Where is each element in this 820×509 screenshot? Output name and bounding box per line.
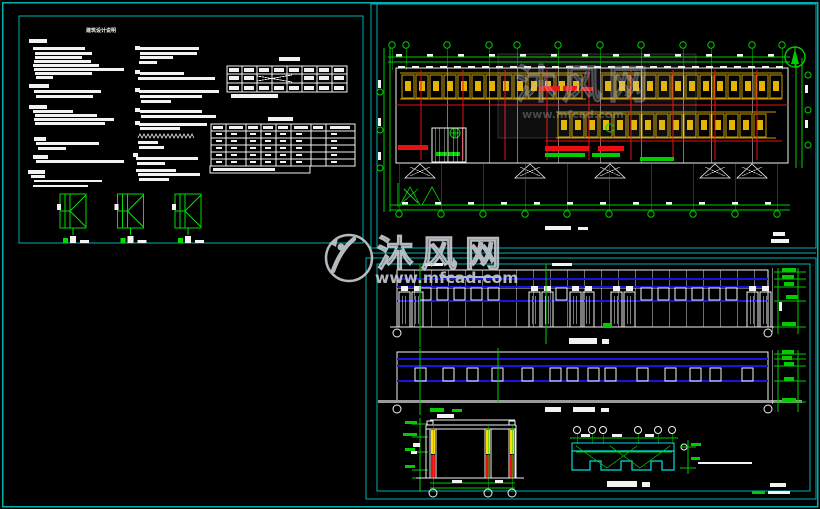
door-leaf [70,194,86,228]
section-level-text [413,443,420,447]
notes-column-2 [135,108,140,112]
dim-text [178,238,183,243]
notes-column-2 [136,169,176,172]
window [726,288,737,300]
fixture [731,81,737,91]
dim-text [70,236,76,243]
axis-bubble [393,329,401,337]
canopy-title [607,481,637,487]
green-annotations [545,153,585,157]
fixture [715,120,721,130]
axis-bubble [438,211,444,217]
window [690,368,701,381]
watermark-tile-brand: 沐风网 [516,62,654,108]
axis-bubble [764,329,772,337]
canopy-dim-text [645,434,654,437]
axis-bubble [564,211,570,217]
section-bottom-dim-text [495,480,503,483]
notes-column-2 [139,61,157,64]
front-elevation-title [602,339,609,344]
window [742,368,753,381]
axis-bubble [377,165,383,171]
table1-cells [304,86,314,90]
window [658,288,669,300]
dim-text [567,202,573,205]
table1-cells [274,86,284,90]
dim-text-left [378,118,381,126]
window [550,368,561,381]
section-level-text [411,451,417,454]
door [542,292,553,327]
window [437,288,448,300]
red-annotations [545,146,589,151]
axis-bubble [486,42,492,48]
table2-cells [296,154,302,156]
green-annotations [640,157,674,161]
door-sign [572,286,579,291]
rear-dim-text [782,356,792,360]
table2-cells [216,147,222,149]
watermark-logo-dot [338,244,345,251]
table1-cells [334,86,344,90]
table2-cells [280,161,286,163]
front-dim-text [782,275,794,279]
canopy-braces [640,446,670,468]
axis-bubble [805,142,811,148]
dim-text-left [378,152,381,160]
red-annotations [598,146,624,151]
table2-footer-text [213,168,275,171]
axis-bubble [444,42,450,48]
door [760,292,771,327]
dim-text [185,236,191,243]
table1-cells [334,76,344,80]
watermark: 沐风网www.mfcad.com [326,234,518,287]
notes-sheet-border [19,16,363,243]
canopy-title [642,482,650,487]
notes-column-2 [139,178,169,181]
window [471,288,482,300]
table2-cells [265,161,271,163]
notes-column-1 [34,60,91,63]
table2-cells [280,140,286,142]
notes-column-1 [34,68,124,71]
notes-column-1 [34,137,46,141]
door [529,292,540,327]
titleblock-green-text [752,491,765,494]
table2-cells [296,140,302,142]
fixture [405,81,411,91]
dim-text [501,202,507,205]
dim-text [765,202,771,205]
table1-note [231,94,278,98]
table2-cells [250,161,256,163]
fixture [773,81,779,91]
dim-text [458,54,464,57]
door [399,292,410,327]
axis-bubble [389,42,395,48]
dim-text [128,236,134,243]
front-dim-text [782,322,796,326]
table2-cells [331,133,337,135]
axis-bubble [574,427,581,434]
window [709,288,720,300]
table1-cells [259,86,269,90]
door-handle [57,204,61,210]
door [624,292,635,327]
window [454,288,465,300]
notes-column-1 [36,160,124,163]
table2-headers [313,126,323,129]
level-marks [552,263,572,266]
floor-plan: 沐风网www.mfcad.com [377,42,811,243]
door [611,292,622,327]
notes-column-1 [31,175,45,178]
axis-bubble [805,107,811,113]
rear-dim-text [782,350,794,354]
red-annotations [398,145,428,150]
dim-text [121,238,126,243]
window [710,368,721,381]
titleblock-text [768,491,790,494]
parapet [427,421,433,425]
table2-title [268,117,293,121]
notes-column-1 [34,118,114,121]
table2-headers [213,126,223,129]
section-bottom-dim-text [452,480,462,483]
notes-column-2 [141,115,216,118]
table2-cells [265,147,271,149]
window [637,368,648,381]
window [492,368,503,381]
front-dim-text [786,295,798,299]
fixture [743,120,749,130]
axis-bubble [377,89,383,95]
table2-cells [280,154,286,156]
table2-cells [231,133,237,135]
canopy-braces [576,446,607,468]
door-brace [128,195,144,211]
table1-cells [229,76,239,80]
axis-bubble [732,211,738,217]
watermark-tile-url: www.mfcad.com [522,108,624,121]
notes-column-1 [29,84,49,88]
table1-cells [274,68,284,72]
axis-bubble [774,211,780,217]
window [665,368,676,381]
axis-bubble [484,489,492,497]
ground-strip [378,400,802,403]
table2-cells [280,133,286,135]
table2-cells [331,154,337,156]
gable [515,164,545,178]
notes-column-1 [35,72,92,75]
notes-column-2 [139,123,207,126]
axis-bubble [606,211,612,217]
table1-cells [229,86,239,90]
window [567,368,578,381]
rear-dim-text [782,398,796,402]
axis-bubble [655,427,662,434]
window [467,368,478,381]
notes-column-2 [140,56,173,59]
fixture [475,81,481,91]
door [583,292,594,327]
table2-headers [294,126,308,129]
stair [432,128,466,162]
green-mark [603,323,612,328]
cad-sheet-view: 建筑设计说明沐风网www.mfcad.com沐风网www.mfcad.com [0,0,820,509]
axis-bubble [480,211,486,217]
table1-cells [319,76,329,80]
dim-text [489,54,495,57]
table2-cells [331,140,337,142]
notes-column-1 [35,122,105,125]
section-dim-text [405,448,415,451]
dim-text [427,54,433,57]
table1-cells [289,86,299,90]
door-leaf [128,194,144,228]
dim-text-left [378,80,381,88]
dim-text [468,202,474,205]
door-sign [762,286,769,291]
notes-column-1 [33,64,99,67]
fixture [757,120,763,130]
window [556,288,567,300]
axis-bubble [403,42,409,48]
notes-column-1 [36,95,93,98]
fixture [759,81,765,91]
window [641,288,652,300]
dim-text [737,54,743,57]
dim-text [699,202,705,205]
notes-column-1 [29,105,47,109]
door-brace [185,211,201,227]
dim-text [732,202,738,205]
notes-column-1 [38,147,66,150]
table1-cells [289,68,299,72]
axis-bubble [555,42,561,48]
window [675,288,686,300]
notes-column-2 [138,141,158,144]
table2-headers [229,126,243,129]
door-handle [115,204,119,210]
dim-text [195,240,204,243]
rear-title-green [452,409,462,412]
table2-cells [296,133,302,135]
table2-cells [296,161,302,163]
green-annotations [592,153,620,157]
window [588,368,599,381]
notes-column-2 [137,162,165,165]
table1-cells [319,86,329,90]
notes-column-1 [36,142,99,145]
notes-column-2 [135,70,140,74]
canopy-right-dim-text [691,457,700,460]
axis-bubble [690,211,696,217]
notes-column-1 [33,155,48,159]
dim-text [666,202,672,205]
door-brace [185,195,201,211]
table2-cells [231,147,237,149]
canopy-slab [572,443,674,451]
fixture [717,81,723,91]
axis-bubble [749,42,755,48]
notes-column-2 [141,100,171,103]
notes-column-2 [136,157,198,160]
table2-cells [216,154,222,156]
note-line [698,462,752,464]
front-dim-text [784,282,794,286]
table1-cells [259,68,269,72]
door [570,292,581,327]
notes-column-2 [139,47,199,50]
table2-cells [231,161,237,163]
table2-cells [265,140,271,142]
fixture [419,81,425,91]
axis-bubble [514,42,520,48]
table2-cells [250,154,256,156]
notes-column-1 [33,110,73,113]
dim-text-right [805,120,808,128]
dim-text [706,54,712,57]
fixture [745,81,751,91]
table1-cells [304,76,314,80]
axis-bubble [589,427,596,434]
notes-column-2 [139,90,219,93]
window [522,368,533,381]
axis-bubble [648,211,654,217]
fixture [489,81,495,91]
notes-column-1 [35,52,92,55]
gable [405,164,435,178]
notes-column-2 [140,95,202,98]
front-dim-text [782,268,796,272]
fixture [701,120,707,130]
table2-cells [265,154,271,156]
fixture [461,81,467,91]
dim-text [534,202,540,205]
section-and-canopy-details [403,414,790,497]
table2-cells [250,147,256,149]
axis-bubble [396,211,402,217]
table2-cells [331,147,337,149]
notes-column-1 [34,180,102,182]
notes-column-1 [34,90,101,93]
table1-cells [304,68,314,72]
table2-cells [250,133,256,135]
axis-bubble [393,405,401,413]
window [415,368,426,381]
section-dim-text [405,465,415,468]
window [692,288,703,300]
gable [700,164,730,178]
dim-text [138,240,147,243]
table2-cells [216,140,222,142]
table2-headers [248,126,258,129]
dim-text [80,240,89,243]
axis-bubble [597,42,603,48]
window [605,368,616,381]
rear-elevation-title [601,408,609,412]
table1-cells [244,76,254,80]
axis-bubble [680,42,686,48]
dim-text-right [805,85,808,93]
notes-column-2 [139,146,164,149]
dim-text [600,202,606,205]
notes-column-2 [138,77,215,80]
axis-bubble [779,42,785,48]
titleblock-text [770,483,786,487]
notes-column-2 [133,153,138,157]
notes-hatch-line [138,134,194,138]
door-sign [531,286,538,291]
notes-column-1 [28,170,45,174]
window [488,288,499,300]
canopy-braces [610,446,640,468]
axis-bubble [638,42,644,48]
door [412,292,423,327]
plan-title [545,226,571,230]
door-sign [544,286,551,291]
gable [595,164,625,178]
notes-column-2 [140,72,184,75]
notes-column-2 [140,110,202,113]
axis-bubble [429,489,437,497]
door-sign [585,286,592,291]
door [747,292,758,327]
table1-cells [334,68,344,72]
fixture [703,81,709,91]
notes-column-1 [29,39,47,43]
table1-title [279,57,300,61]
table2-cells [280,147,286,149]
table2-cells [265,133,271,135]
table2-headers [278,126,288,129]
sheet-titleblock [773,232,785,236]
dim-text [402,202,408,205]
section-level-text [437,414,454,418]
canopy-dim-text [612,434,622,437]
rear-dim-text [784,377,794,381]
notes-column-1 [35,114,97,117]
table2-cells [216,161,222,163]
table2-cells [231,140,237,142]
door-brace [70,195,86,211]
window [443,368,454,381]
table2-headers [263,126,273,129]
door-sign [626,286,633,291]
fixture [433,81,439,91]
table2-headers [330,126,350,129]
axis-bubble [708,42,714,48]
table2-cells [331,161,337,163]
door-brace [70,211,86,227]
cad-drawing: 建筑设计说明沐风网www.mfcad.com沐风网www.mfcad.com [0,0,820,509]
axis-bubble [600,427,607,434]
window [420,288,431,300]
gable [737,164,767,178]
table2-cells [231,154,237,156]
rear-dim-text [784,362,794,366]
rear-title-green [430,408,444,412]
notes-column-1 [33,185,88,187]
table2-cells [296,147,302,149]
dim-text [63,238,68,243]
dim-text [633,202,639,205]
notes-sheet: 建筑设计说明 [28,27,355,243]
axis-bubble [635,427,642,434]
